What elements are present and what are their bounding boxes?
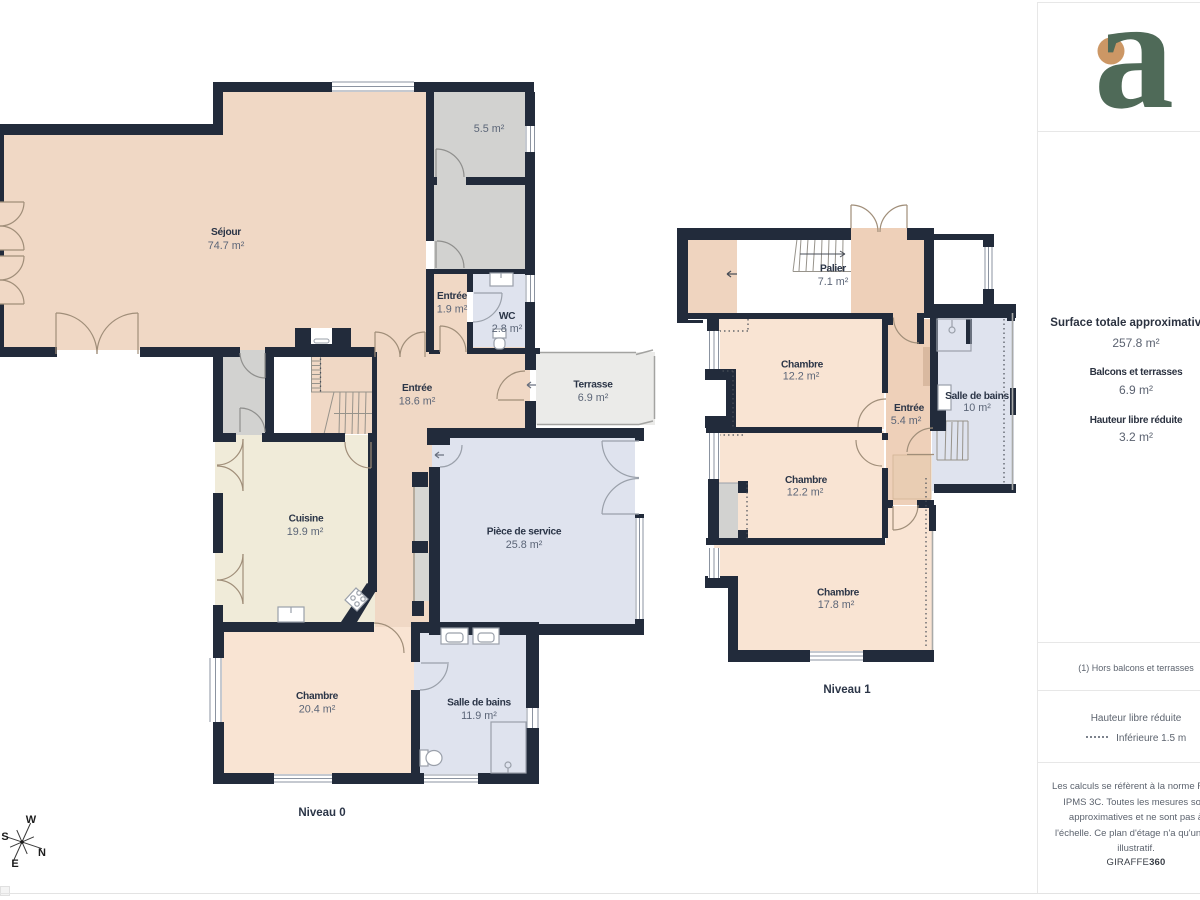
svg-text:Entrée: Entrée <box>402 383 433 394</box>
svg-text:W: W <box>26 814 37 826</box>
svg-text:Pièce de service: Pièce de service <box>487 527 562 538</box>
svg-text:12.2 m²: 12.2 m² <box>787 487 824 499</box>
svg-text:a: a <box>1094 15 1174 125</box>
svg-text:Terrasse: Terrasse <box>573 380 613 391</box>
svg-text:7.1 m²: 7.1 m² <box>818 276 849 288</box>
svg-text:2.8 m²: 2.8 m² <box>492 323 523 335</box>
svg-text:11.9 m²: 11.9 m² <box>461 710 497 722</box>
svg-text:N: N <box>38 847 46 859</box>
svg-text:17.8 m²: 17.8 m² <box>818 599 855 611</box>
svg-text:Cuisine: Cuisine <box>289 514 324 525</box>
svg-text:Palier: Palier <box>820 264 846 275</box>
svg-text:19.9 m²: 19.9 m² <box>287 526 324 538</box>
svg-text:WC: WC <box>499 311 516 322</box>
svg-text:Entrée: Entrée <box>894 403 925 414</box>
svg-text:Chambre: Chambre <box>817 588 860 599</box>
svg-text:Séjour: Séjour <box>211 227 241 238</box>
svg-text:25.8 m²: 25.8 m² <box>506 539 543 551</box>
svg-text:5.4 m²: 5.4 m² <box>891 415 922 427</box>
svg-text:Chambre: Chambre <box>296 691 339 702</box>
svg-text:Chambre: Chambre <box>781 360 824 371</box>
svg-text:S: S <box>1 831 8 843</box>
svg-text:1.9 m²: 1.9 m² <box>437 304 468 316</box>
svg-text:6.9 m²: 6.9 m² <box>578 392 609 404</box>
svg-text:5.5 m²: 5.5 m² <box>474 123 505 135</box>
svg-text:Niveau 1: Niveau 1 <box>823 684 871 696</box>
svg-text:Niveau 0: Niveau 0 <box>298 807 345 819</box>
svg-text:20.4 m²: 20.4 m² <box>299 704 336 716</box>
svg-text:10 m²: 10 m² <box>963 402 991 414</box>
svg-text:Entrée: Entrée <box>437 291 468 302</box>
svg-text:E: E <box>11 858 18 870</box>
svg-text:12.2 m²: 12.2 m² <box>783 371 820 383</box>
svg-text:Salle de bains: Salle de bains <box>447 698 511 709</box>
svg-text:Chambre: Chambre <box>785 475 828 486</box>
svg-text:74.7 m²: 74.7 m² <box>208 240 245 252</box>
svg-text:18.6 m²: 18.6 m² <box>399 396 436 408</box>
svg-text:Salle de bains: Salle de bains <box>945 391 1009 402</box>
